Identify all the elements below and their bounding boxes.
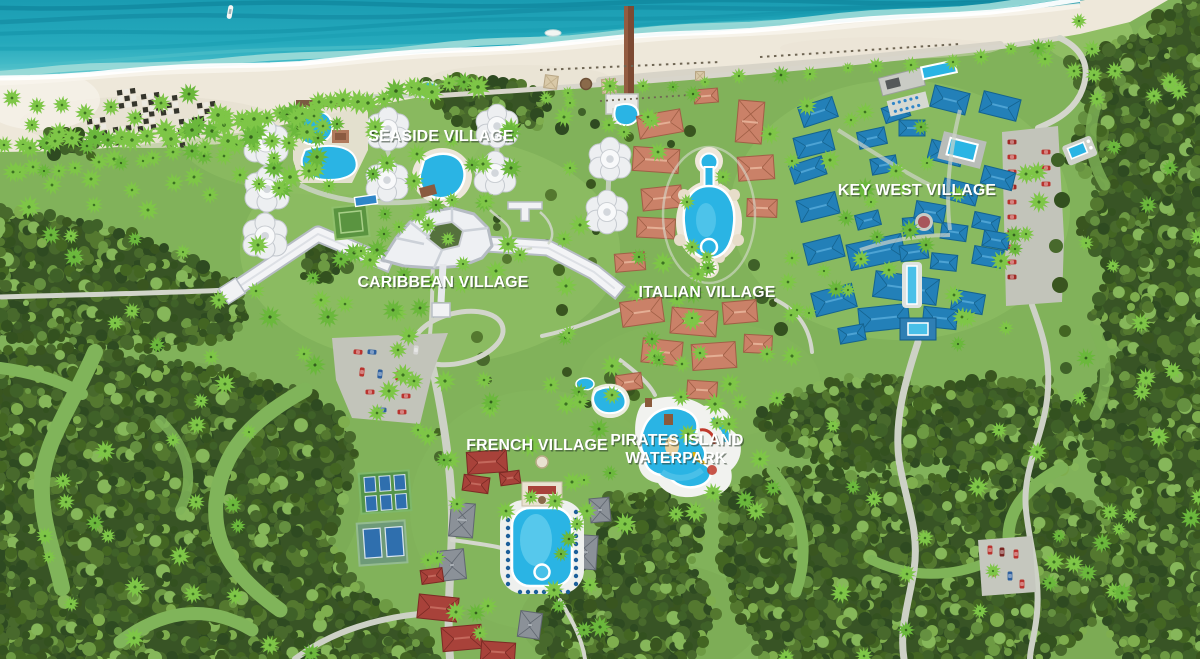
svg-text:WATERPARK: WATERPARK bbox=[625, 450, 727, 467]
svg-text:KEY WEST VILLAGE: KEY WEST VILLAGE bbox=[838, 182, 996, 199]
svg-text:FRENCH VILLAGE: FRENCH VILLAGE bbox=[466, 437, 607, 454]
svg-text:SEASIDE VILLAGE: SEASIDE VILLAGE bbox=[368, 128, 513, 145]
svg-text:ITALIAN VILLAGE: ITALIAN VILLAGE bbox=[639, 284, 776, 301]
svg-text:CARIBBEAN VILLAGE: CARIBBEAN VILLAGE bbox=[357, 274, 528, 291]
svg-text:PIRATES ISLAND: PIRATES ISLAND bbox=[610, 432, 743, 449]
